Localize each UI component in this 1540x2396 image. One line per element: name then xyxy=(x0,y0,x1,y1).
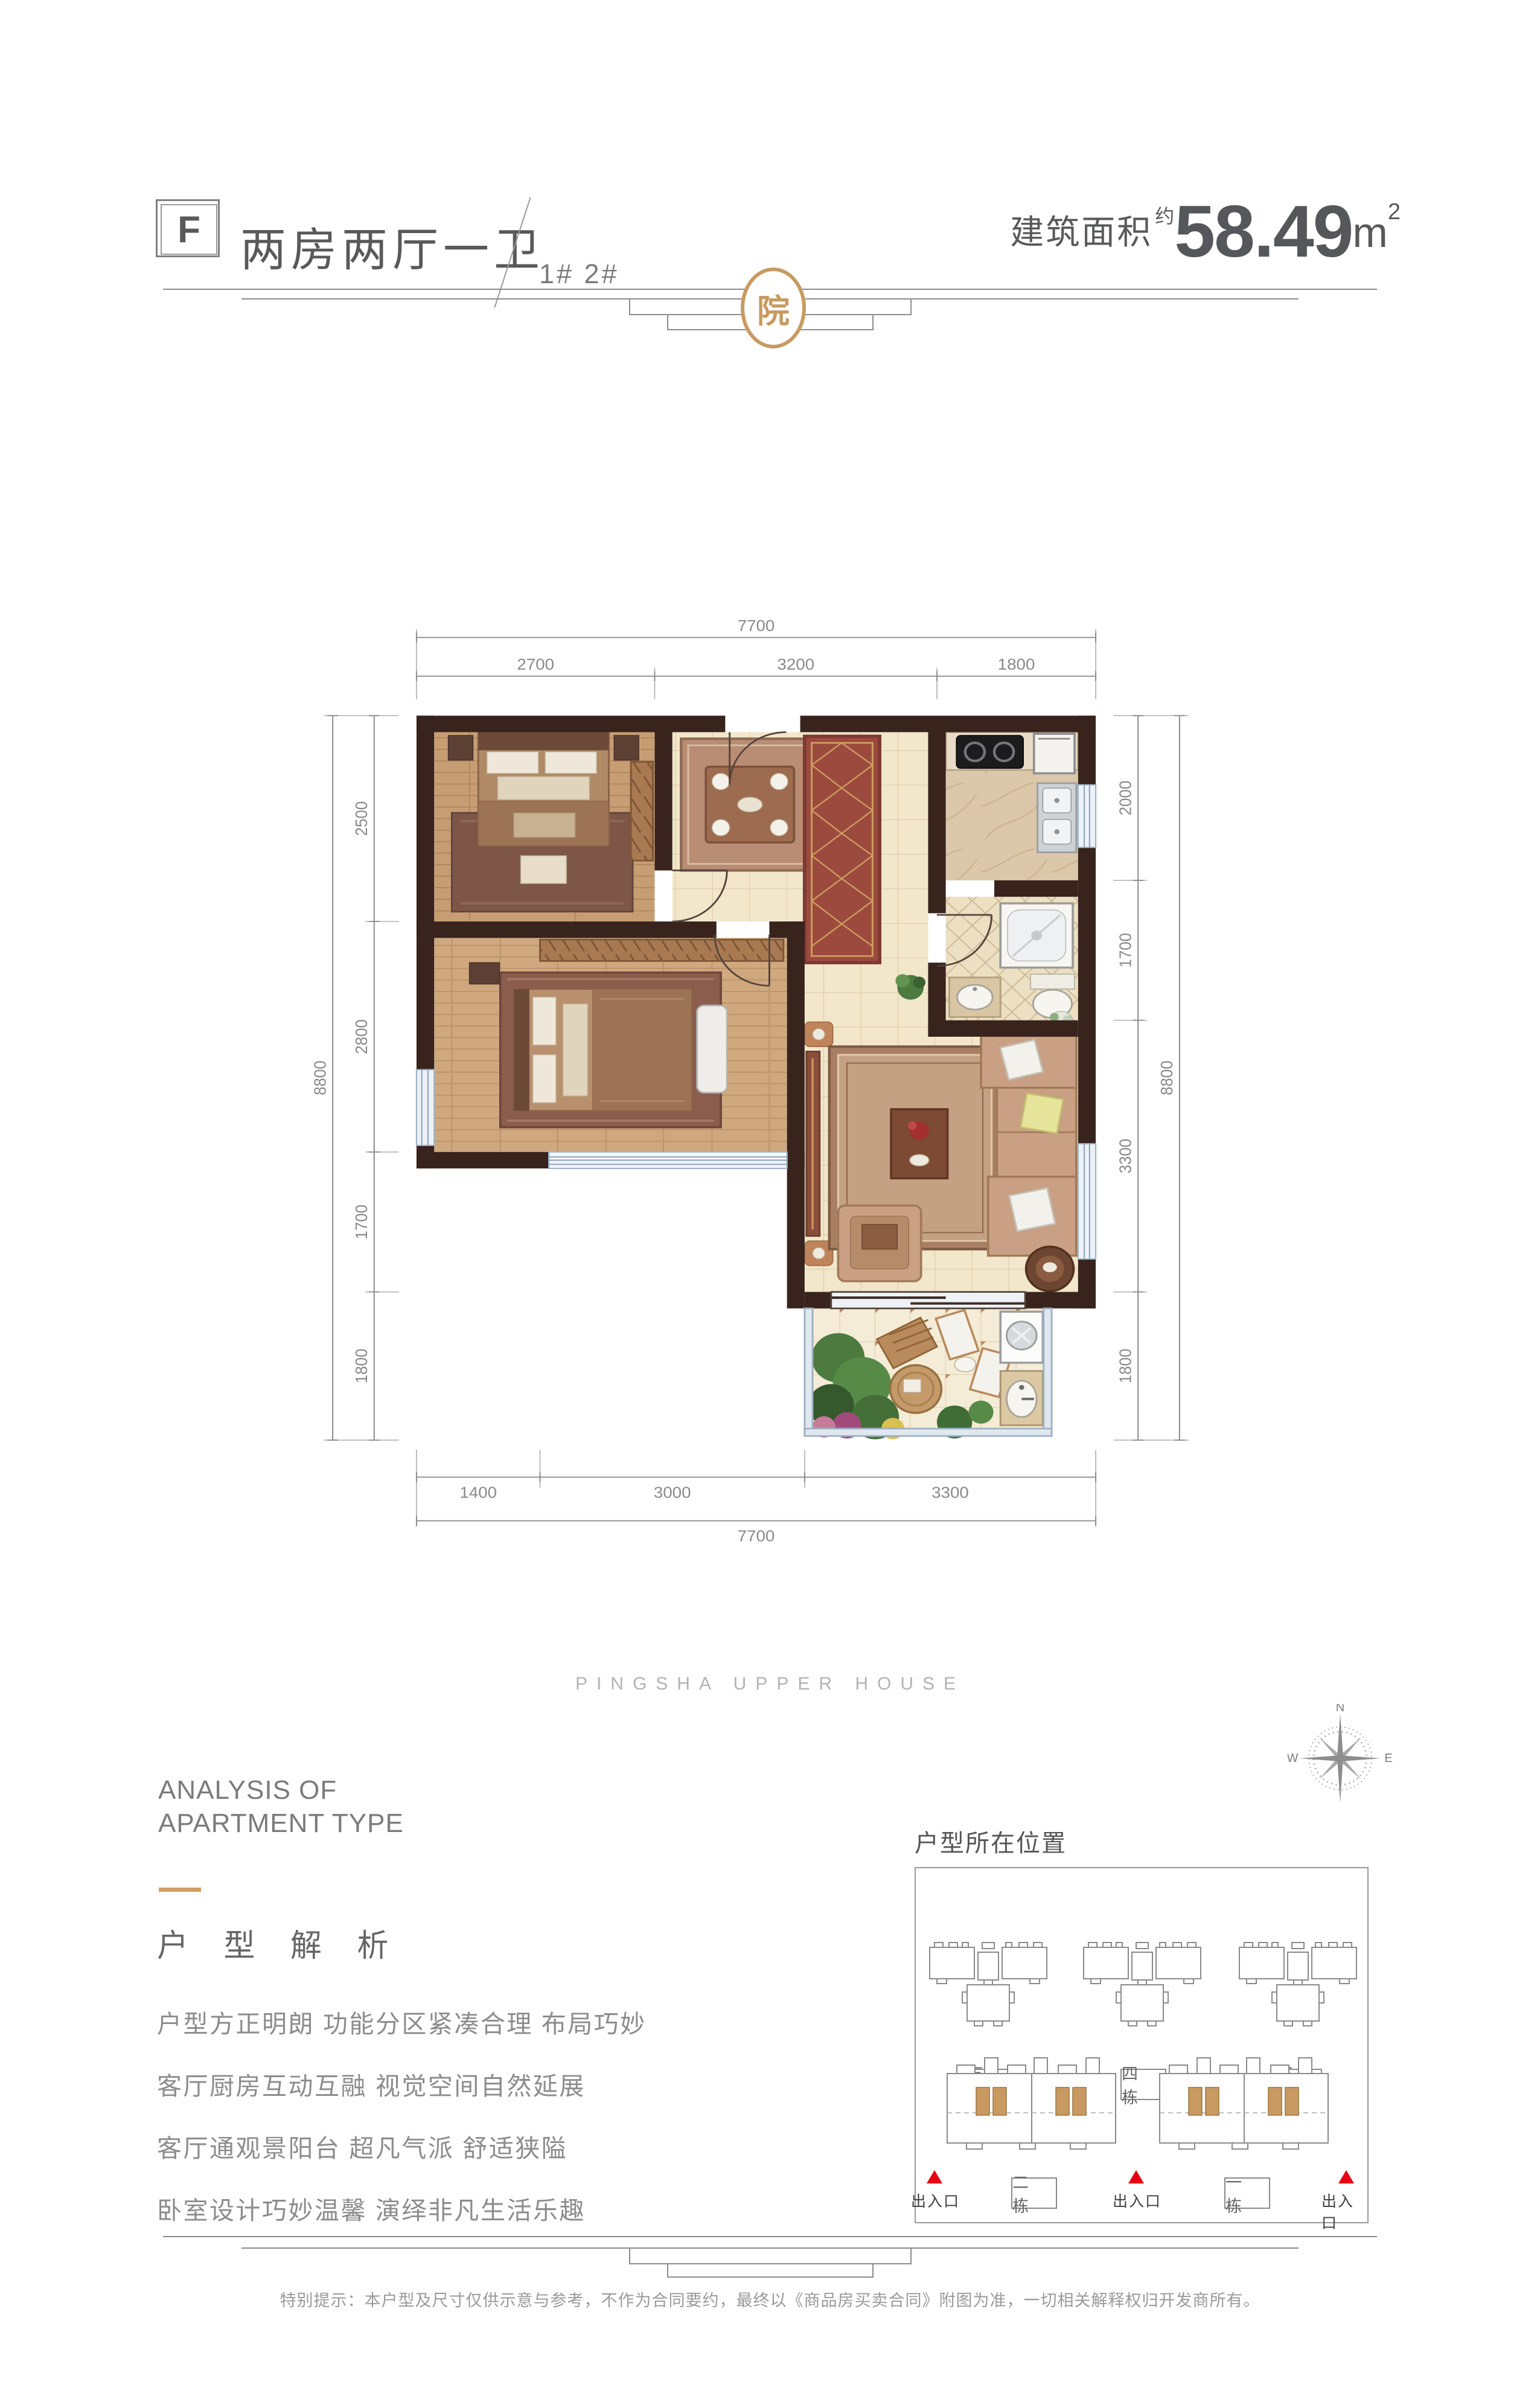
unit-code-box: F xyxy=(156,199,220,257)
svg-text:8800: 8800 xyxy=(311,1060,330,1095)
floorplan-drawing: 7700 2700 3200 1800 8800 2500 2800 1700 … xyxy=(302,609,1210,1551)
analysis-line: 卧室设计巧妙温馨 演绎非凡生活乐趣 xyxy=(157,2190,586,2226)
svg-text:2700: 2700 xyxy=(517,656,554,673)
svg-text:1700: 1700 xyxy=(1116,933,1135,968)
area-unit-sup: 2 xyxy=(1388,199,1401,261)
svg-text:7700: 7700 xyxy=(738,617,775,635)
gold-accent-bar xyxy=(159,1888,201,1892)
disclaimer-text: 特别提示：本户型及尺寸仅供示意与参考，不作为合同要约，最终以《商品房买卖合同》附… xyxy=(0,2287,1540,2311)
building-label-1: 一 栋 xyxy=(1224,2177,1270,2209)
svg-text:1700: 1700 xyxy=(352,1205,371,1240)
svg-text:3200: 3200 xyxy=(777,656,814,673)
entry-runner-rug xyxy=(805,736,880,963)
building-label-2: 二 栋 xyxy=(1011,2177,1057,2209)
compass-e: E xyxy=(1384,1752,1392,1765)
area-approx: 约 xyxy=(1155,201,1174,261)
entrance-triangle-icon xyxy=(1128,2170,1144,2183)
building-outline-2 xyxy=(942,2040,1120,2170)
unit-code: F xyxy=(161,204,217,255)
area-label: 建筑面积 xyxy=(1010,205,1152,261)
building-outline-4 xyxy=(1079,1932,1206,2034)
entrance-label: 出入口 xyxy=(911,2189,960,2211)
area-unit: m xyxy=(1353,208,1388,261)
svg-text:2000: 2000 xyxy=(1116,781,1135,816)
analysis-cn-title: 户 型 解 析 xyxy=(157,1920,401,1965)
svg-text:1800: 1800 xyxy=(1116,1348,1135,1383)
analysis-line: 户型方正明朗 功能分区紧凑合理 布局巧妙 xyxy=(157,2004,647,2040)
brand-en-name: PINGSHA UPPER HOUSE xyxy=(0,1674,1540,1694)
seal-character: 院 xyxy=(757,284,790,332)
page-title: 两房两厅一卫 xyxy=(240,213,545,279)
compass-w: W xyxy=(1288,1752,1299,1765)
site-plan-box: 五 栋 四 栋 三 栋 二 栋 xyxy=(915,1867,1369,2223)
bedroom2-furniture xyxy=(449,732,653,911)
entrance-triangle-icon xyxy=(1338,2170,1354,2183)
svg-text:8800: 8800 xyxy=(1157,1060,1176,1095)
svg-text:2500: 2500 xyxy=(352,801,371,836)
analysis-line: 客厅通观景阳台 超凡气派 舒适狭隘 xyxy=(157,2128,567,2164)
analysis-en-line1: ANALYSIS OF xyxy=(158,1775,337,1805)
svg-text:1800: 1800 xyxy=(998,656,1035,673)
brand-seal-icon: 院 xyxy=(741,267,806,348)
building-numbers: 1# 2# xyxy=(539,258,619,290)
building-outline-1 xyxy=(1155,2040,1333,2170)
floorplan-poster: { "header": { "unit_code": "F", "title":… xyxy=(0,0,1540,2396)
location-title: 户型所在位置 xyxy=(915,1824,1067,1859)
entrance-label: 出入口 xyxy=(1113,2189,1161,2211)
compass-n: N xyxy=(1336,1704,1344,1714)
building-outline-5 xyxy=(925,1932,1052,2034)
entrance-label: 出入口 xyxy=(1321,2189,1367,2233)
entrance-triangle-icon xyxy=(927,2170,942,2183)
svg-text:2800: 2800 xyxy=(352,1019,371,1054)
analysis-en-line2: APARTMENT TYPE xyxy=(158,1808,404,1839)
svg-text:3300: 3300 xyxy=(1116,1139,1135,1174)
svg-text:1400: 1400 xyxy=(459,1484,497,1501)
svg-text:3300: 3300 xyxy=(931,1484,969,1501)
svg-text:7700: 7700 xyxy=(738,1527,775,1545)
analysis-line: 客厅厨房互动互融 视觉空间自然延展 xyxy=(157,2066,586,2102)
svg-text:3000: 3000 xyxy=(654,1484,691,1501)
area-info: 建筑面积 约 58.49 m 2 xyxy=(942,199,1401,261)
building-outline-3 xyxy=(1235,1932,1361,2034)
area-value: 58.49 xyxy=(1174,201,1352,261)
dining-set xyxy=(681,738,817,870)
compass-icon: N W E xyxy=(1288,1704,1393,1810)
svg-text:1800: 1800 xyxy=(352,1348,371,1383)
